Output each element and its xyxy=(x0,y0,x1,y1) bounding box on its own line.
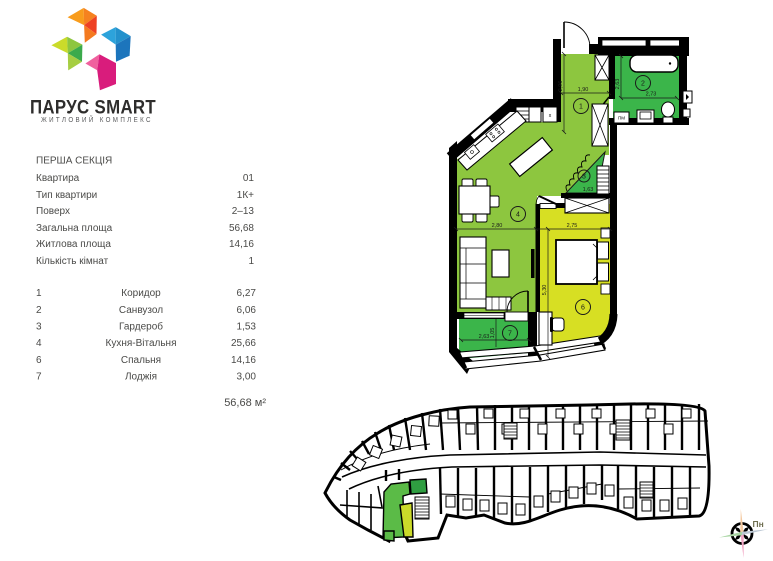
svg-text:Санвузол: Санвузол xyxy=(119,305,163,316)
svg-text:7: 7 xyxy=(36,372,42,383)
svg-text:3: 3 xyxy=(582,174,586,181)
svg-text:Квартира: Квартира xyxy=(36,173,80,184)
svg-text:56,68 м²: 56,68 м² xyxy=(224,397,266,409)
svg-text:01: 01 xyxy=(243,173,255,184)
svg-text:Кількість кімнат: Кількість кімнат xyxy=(36,256,109,267)
svg-text:ПАРУС SMART: ПАРУС SMART xyxy=(30,95,156,118)
svg-text:3,00: 3,00 xyxy=(237,372,257,383)
svg-text:1,05: 1,05 xyxy=(490,328,496,339)
svg-text:Загальна площа: Загальна площа xyxy=(36,223,113,234)
svg-text:Тип квартири: Тип квартири xyxy=(36,190,97,201)
svg-text:6: 6 xyxy=(36,355,42,366)
svg-text:1,90: 1,90 xyxy=(578,87,589,93)
svg-text:25,66: 25,66 xyxy=(231,338,256,349)
svg-text:Лоджія: Лоджія xyxy=(125,372,157,383)
svg-text:2–13: 2–13 xyxy=(232,206,255,217)
svg-text:14,16: 14,16 xyxy=(231,355,256,366)
svg-text:56,68: 56,68 xyxy=(229,223,254,234)
svg-text:1,53: 1,53 xyxy=(237,322,257,333)
svg-text:Гардероб: Гардероб xyxy=(119,321,163,333)
svg-text:2,96: 2,96 xyxy=(558,81,564,92)
svg-text:Житлова площа: Житлова площа xyxy=(36,239,111,250)
svg-text:ПМ: ПМ xyxy=(618,116,625,121)
svg-text:7: 7 xyxy=(508,331,512,338)
svg-text:14,16: 14,16 xyxy=(229,239,254,250)
svg-text:ПЕРША СЕКЦІЯ: ПЕРША СЕКЦІЯ xyxy=(36,156,112,167)
svg-text:ЖИТЛОВИЙ КОМПЛЕКС: ЖИТЛОВИЙ КОМПЛЕКС xyxy=(41,114,153,124)
svg-text:1,63: 1,63 xyxy=(583,187,594,193)
svg-text:1К+: 1К+ xyxy=(237,190,254,201)
svg-text:2,80: 2,80 xyxy=(492,223,503,229)
svg-text:6: 6 xyxy=(581,305,585,312)
svg-text:2: 2 xyxy=(36,305,42,316)
svg-text:4: 4 xyxy=(36,338,42,349)
svg-text:1: 1 xyxy=(579,104,583,111)
svg-text:2: 2 xyxy=(641,81,645,88)
svg-text:Спальня: Спальня xyxy=(121,355,161,366)
svg-text:Пн: Пн xyxy=(753,519,764,529)
svg-text:4: 4 xyxy=(516,212,520,219)
svg-text:6,27: 6,27 xyxy=(237,288,257,299)
svg-text:Поверх: Поверх xyxy=(36,206,70,217)
svg-text:3: 3 xyxy=(36,322,42,333)
svg-text:1: 1 xyxy=(36,288,42,299)
svg-text:2,63: 2,63 xyxy=(615,79,621,90)
svg-text:2,73: 2,73 xyxy=(646,92,657,98)
svg-text:Коридор: Коридор xyxy=(121,288,161,299)
svg-text:6,06: 6,06 xyxy=(237,305,257,316)
svg-text:2,75: 2,75 xyxy=(567,223,578,229)
svg-text:2,63: 2,63 xyxy=(479,334,490,340)
svg-text:Кухня-Вітальня: Кухня-Вітальня xyxy=(106,338,177,349)
svg-text:1: 1 xyxy=(248,256,254,267)
svg-text:5,30: 5,30 xyxy=(542,285,548,296)
